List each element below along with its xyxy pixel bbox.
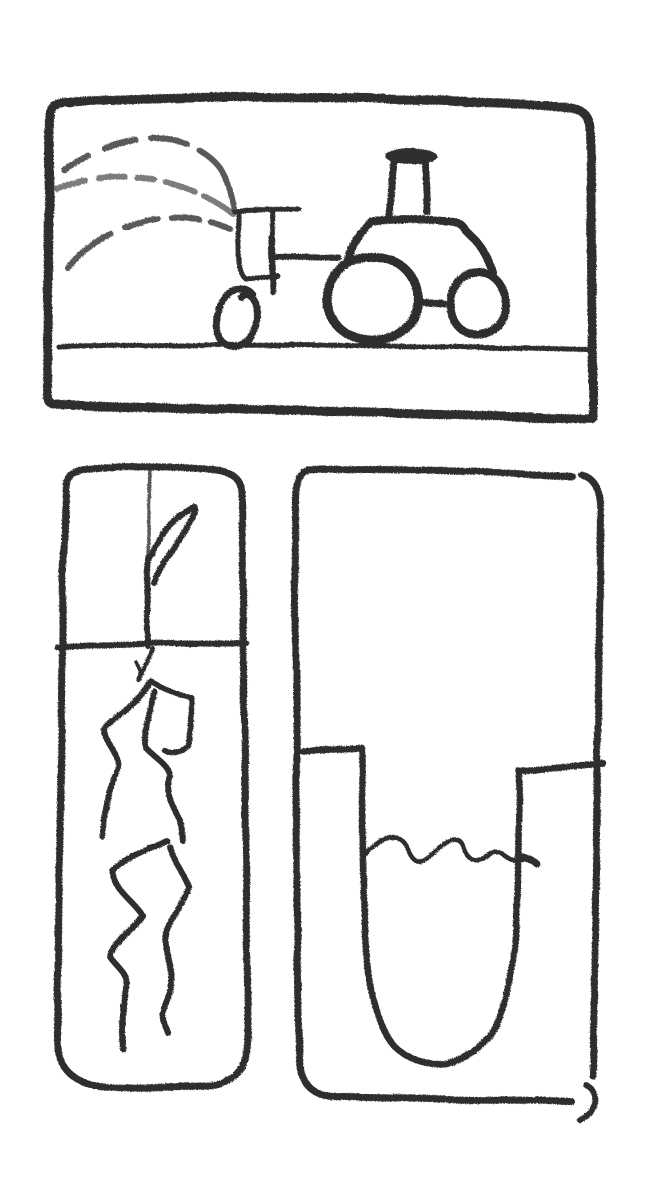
leaf <box>151 507 195 583</box>
axle <box>418 301 443 303</box>
stack-cap <box>385 148 437 164</box>
water-line <box>366 837 532 861</box>
panel-border-top <box>309 470 573 477</box>
sprayer-tank <box>235 209 299 284</box>
root-lower-left <box>110 841 167 1049</box>
panel-border-right <box>582 475 601 1076</box>
corner-hook <box>580 1085 595 1120</box>
sketch <box>0 0 665 1182</box>
panel-seedling-roots <box>57 467 248 1088</box>
cab <box>348 219 493 273</box>
root-lower-right <box>162 847 190 1032</box>
stack-right <box>425 164 427 212</box>
tank-top <box>235 209 299 212</box>
stem-upper <box>148 470 150 554</box>
stack-left <box>389 162 394 217</box>
roots <box>102 649 193 1049</box>
soil-line <box>57 643 247 647</box>
stem-lower <box>146 557 149 646</box>
root-tick <box>136 662 141 672</box>
rear-wheel <box>327 257 417 340</box>
panel-tractor-field <box>47 97 593 419</box>
ground-line <box>59 345 589 350</box>
panel-water-level <box>295 470 604 1120</box>
root-junction <box>139 649 153 680</box>
shaft-walls <box>302 748 604 1064</box>
panel-border-left-bottom <box>295 471 571 1101</box>
hitch-bar <box>278 257 339 258</box>
sketch-canvas <box>0 0 665 1182</box>
hitch-post <box>272 238 273 292</box>
root-branch-right <box>151 681 193 753</box>
water-line-end <box>523 857 537 864</box>
root-upper-left <box>102 683 149 836</box>
root-upper-middle <box>146 691 182 840</box>
tank-left <box>239 216 246 279</box>
spray-arc-bottom <box>68 218 230 268</box>
panel-border <box>57 467 248 1088</box>
front-wheel <box>216 288 257 346</box>
spray-arc-middle <box>56 177 233 214</box>
back-wheel <box>450 273 506 335</box>
exhaust-stack <box>385 148 437 217</box>
